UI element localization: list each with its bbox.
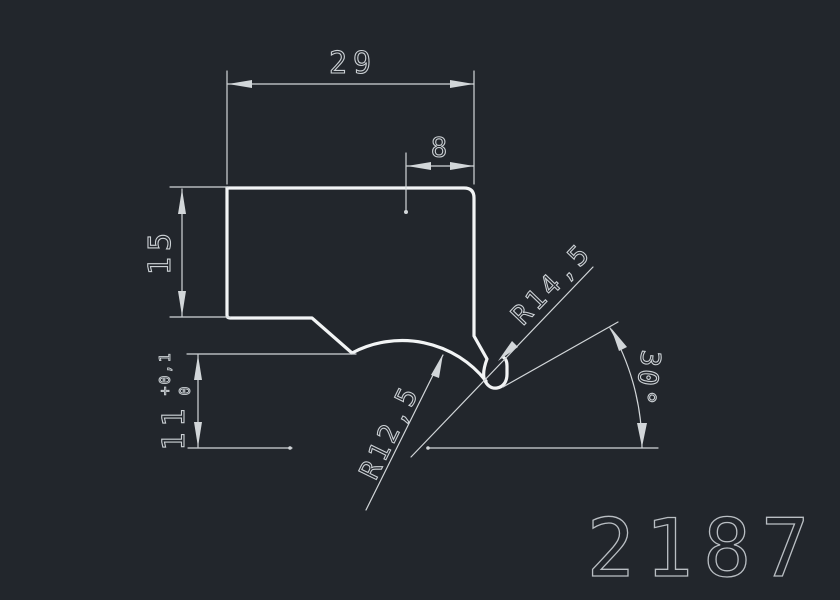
arrowhead [498,341,518,361]
cad-drawing-canvas: 29 8 15 11 +0,1 0 R12,5 R14,5 30° 2187 [0,0,840,600]
dim-11-tolerance-upper: +0,1 [155,351,175,395]
angle-leg-line [503,322,618,387]
arrowhead [450,80,474,88]
angle-30-dimension [503,322,647,448]
profile-top-right-hook-path [227,188,507,388]
baseline-right [426,446,658,450]
profile-outline [227,188,507,388]
endpoint-dot [404,210,408,214]
radius-14-5-leader [411,267,593,457]
dim-11-tolerance-lower: 0 [175,351,195,395]
dimension-29 [227,71,474,184]
arrowhead [450,162,474,170]
dimension-11 [187,354,356,450]
arrowhead [178,189,186,214]
profile-left-bottom-arc-path [227,188,486,381]
dim-8-label: 8 [431,135,451,162]
arrowhead [611,328,627,351]
dim-15-label: 15 [146,227,176,275]
arrowhead [431,354,443,378]
arrowhead [407,162,431,170]
dim-11-tolerance: +0,1 0 [155,351,196,395]
leader-line [411,267,593,457]
arrowhead [228,80,252,88]
dim-29-label: 29 [329,49,377,79]
dim-11-value: 11 [160,403,190,451]
arrowhead [637,423,647,447]
endpoint-dot [288,446,292,450]
angle-30-label: 30° [630,349,664,410]
arrowhead [178,291,186,316]
dimension-15 [170,187,230,317]
endpoint-dot [426,446,430,450]
dim-11-label: 11 +0,1 0 [155,351,196,450]
part-number: 2187 [587,509,820,589]
